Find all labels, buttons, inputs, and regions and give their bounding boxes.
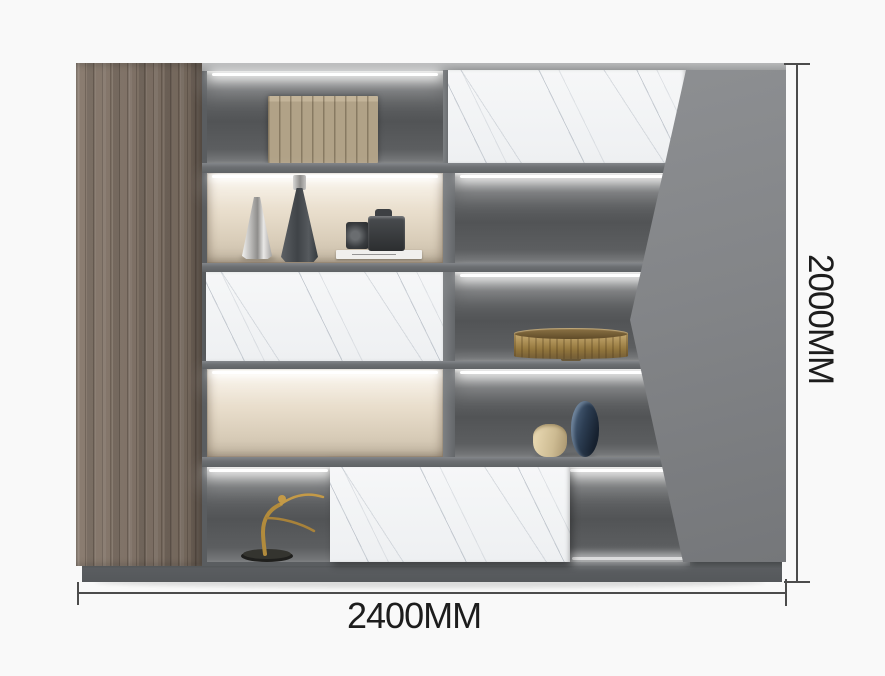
width-dim-line: [78, 592, 786, 594]
shelf-divider: [202, 163, 690, 173]
product-image: 2000MM 2400MM: [0, 0, 885, 676]
navy-oval-vase: [571, 401, 599, 457]
dark-cone-vase-top: [293, 175, 306, 190]
shelf-divider: [202, 361, 690, 369]
bronze-bowl-rim: [514, 328, 628, 339]
camera-book-label: [352, 254, 396, 255]
led-strip: [212, 73, 439, 76]
width-dim-tick-left: [77, 582, 79, 605]
tan-books-row: [268, 96, 378, 163]
height-dim-tick-bottom: [784, 581, 810, 583]
led-floor-glow: [572, 557, 687, 560]
marble-panel-r1: [448, 70, 686, 163]
wood-side-door: [76, 63, 202, 566]
led-strip: [460, 175, 686, 178]
camera-body: [368, 216, 405, 251]
shelf-divider: [202, 457, 690, 467]
marble-drawer-r5: [330, 466, 570, 562]
led-strip: [212, 175, 439, 178]
shelf-divider: [202, 263, 690, 272]
width-dim-label: 2400MM: [347, 598, 481, 634]
height-dim-line: [796, 64, 798, 583]
height-dim-tick-top: [784, 63, 810, 65]
shelf-r4-left: [207, 369, 443, 457]
marble-drawer-r3: [206, 272, 446, 361]
camera-lens: [346, 222, 369, 249]
width-dim-tick-right: [785, 579, 787, 606]
gold-dancer-figurine: [240, 466, 328, 564]
beige-round-vase: [533, 424, 567, 457]
height-dim-label: 2000MM: [803, 254, 838, 384]
led-strip: [212, 371, 439, 374]
